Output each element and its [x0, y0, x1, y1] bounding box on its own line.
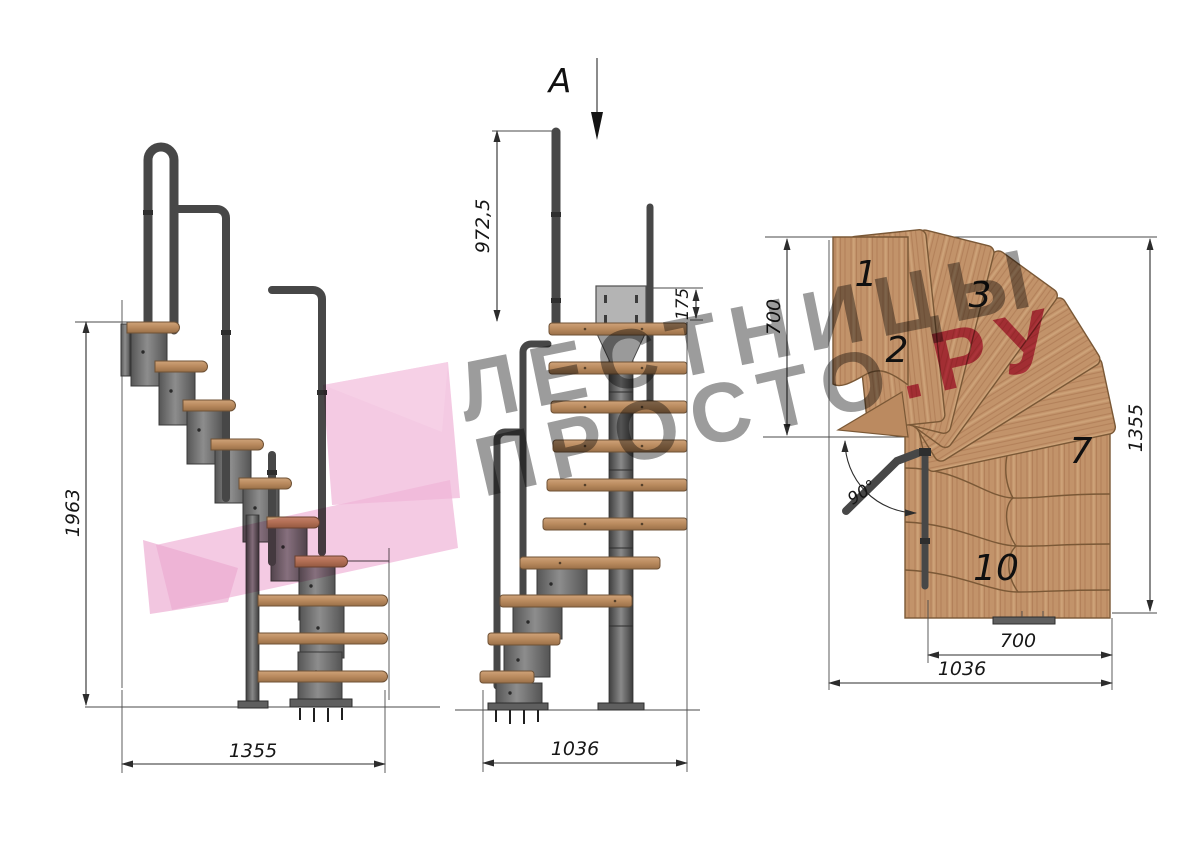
dim-run-width: 700 [1000, 630, 1036, 652]
column-base-plate [598, 703, 644, 710]
anchor-bolts [496, 710, 538, 724]
module-base-plate [290, 699, 352, 707]
step-number-10: 10 [973, 548, 1019, 589]
dim-front-width: 1036 [551, 738, 599, 760]
dim-rail-height: 972,5 [472, 199, 494, 253]
dim-total-depth: 1355 [1125, 404, 1147, 452]
module-base-plate [488, 703, 548, 710]
dim-side-height: 1963 [62, 489, 84, 537]
step-number-7: 7 [1070, 431, 1093, 472]
column-base-plate [238, 701, 268, 708]
anchor-bolts [300, 708, 342, 722]
section-arrow [591, 112, 603, 140]
dim-side-width: 1355 [229, 740, 277, 762]
dim-total-width: 1036 [938, 658, 986, 680]
section-marker: A [547, 61, 572, 100]
floor-plate [993, 617, 1055, 624]
drawing-page: 1963 1355 [0, 0, 1200, 849]
